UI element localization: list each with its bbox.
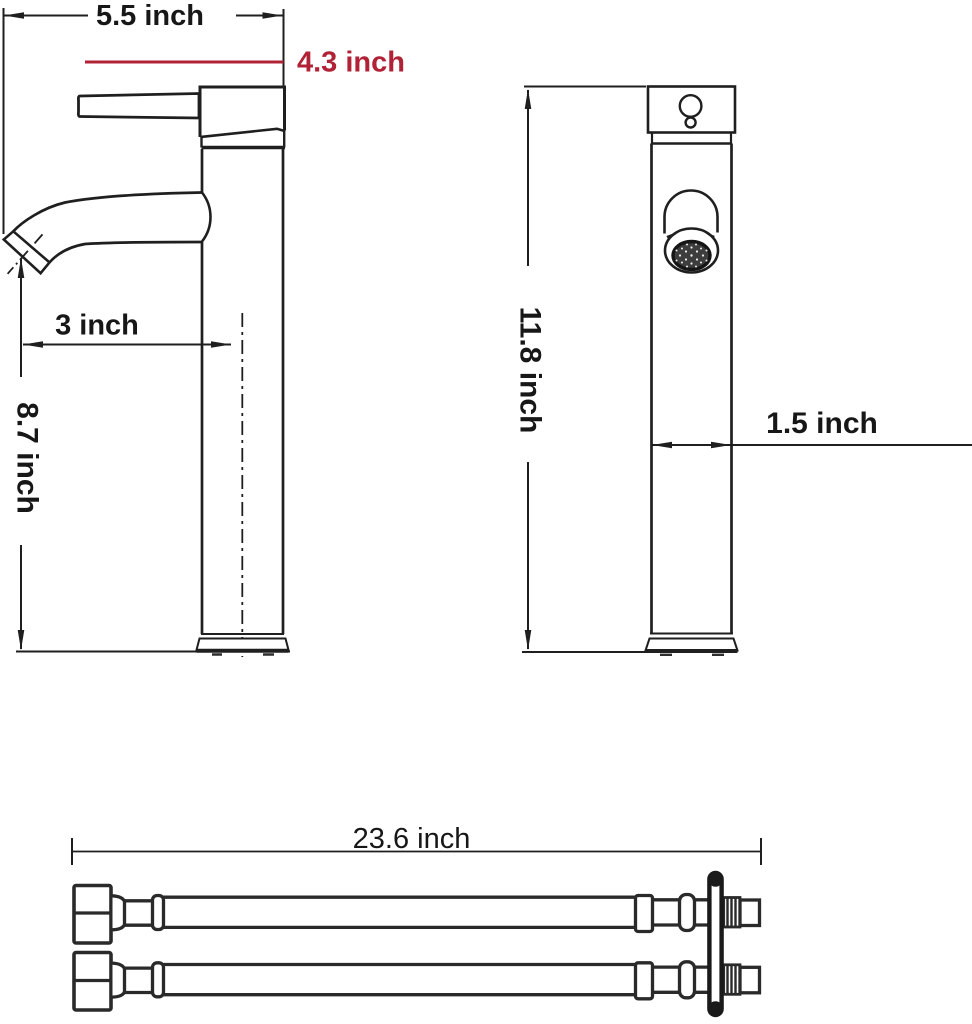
svg-text:11.8 inch: 11.8 inch xyxy=(514,307,547,434)
svg-text:8.7 inch: 8.7 inch xyxy=(11,402,44,514)
svg-text:23.6 inch: 23.6 inch xyxy=(353,823,471,855)
svg-text:3 inch: 3 inch xyxy=(55,310,139,342)
svg-text:1.5 inch: 1.5 inch xyxy=(766,407,878,440)
svg-text:4.3 inch: 4.3 inch xyxy=(297,47,405,79)
svg-text:5.5 inch: 5.5 inch xyxy=(96,0,204,32)
